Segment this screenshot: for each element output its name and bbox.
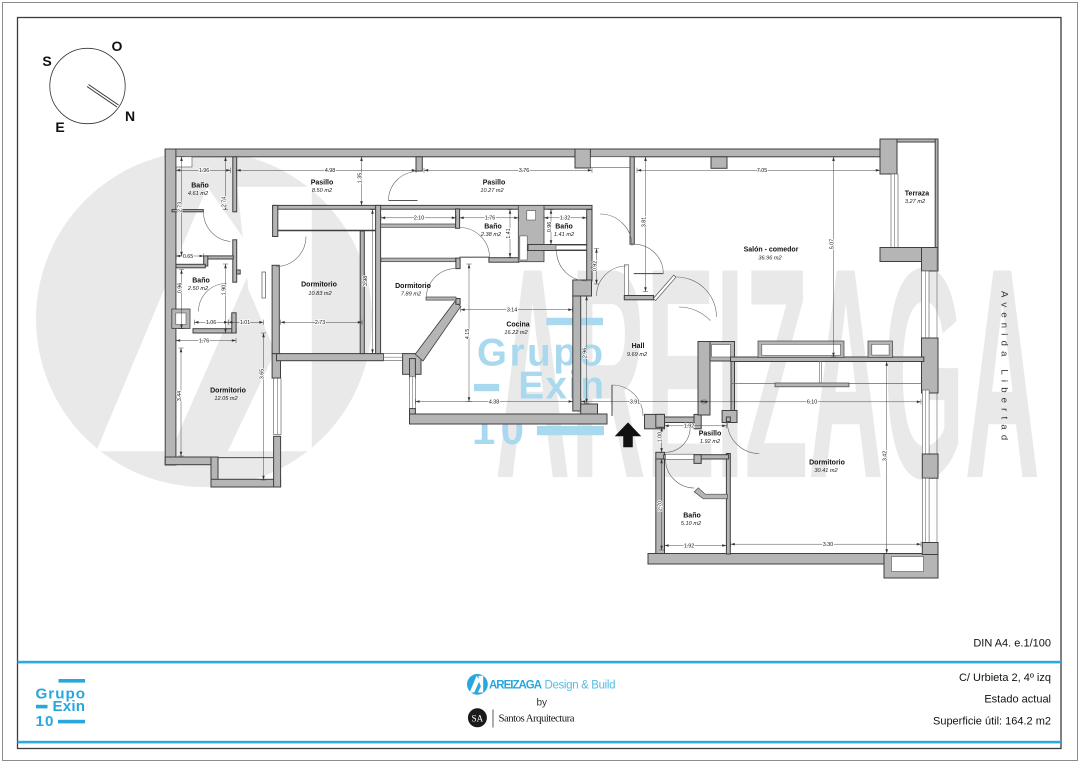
svg-text:Baño: Baño xyxy=(484,224,502,231)
svg-text:8.50 m2: 8.50 m2 xyxy=(312,188,333,194)
svg-text:3.42: 3.42 xyxy=(883,451,889,461)
svg-text:3.30: 3.30 xyxy=(823,542,833,548)
svg-text:3.65: 3.65 xyxy=(260,369,266,379)
svg-text:DIN A4. e.1/100: DIN A4. e.1/100 xyxy=(973,638,1051,650)
svg-text:2.50 m2: 2.50 m2 xyxy=(187,286,209,292)
svg-text:1.92 m2: 1.92 m2 xyxy=(700,439,721,445)
svg-text:C/ Urbieta 2, 4º izq: C/ Urbieta 2, 4º izq xyxy=(959,672,1051,684)
svg-text:36.96 m2: 36.96 m2 xyxy=(758,256,782,262)
svg-text:Baño: Baño xyxy=(683,513,701,520)
svg-text:Design & Build: Design & Build xyxy=(545,680,616,692)
svg-text:by: by xyxy=(537,698,548,709)
svg-text:2.96: 2.96 xyxy=(583,348,589,358)
svg-text:S: S xyxy=(42,53,51,69)
svg-text:Pasillo: Pasillo xyxy=(699,431,722,438)
svg-text:7.05: 7.05 xyxy=(757,168,767,174)
svg-text:N: N xyxy=(125,108,135,124)
svg-text:O: O xyxy=(112,38,123,54)
svg-text:Dormitorio: Dormitorio xyxy=(301,282,337,289)
svg-text:Dormitorio: Dormitorio xyxy=(395,283,431,290)
svg-text:Hall: Hall xyxy=(632,343,645,350)
svg-text:2.73: 2.73 xyxy=(178,202,184,212)
svg-text:4.15: 4.15 xyxy=(465,329,471,339)
svg-text:Avenida Libertad: Avenida Libertad xyxy=(999,291,1010,445)
svg-text:3.14: 3.14 xyxy=(507,308,517,314)
svg-text:E: E xyxy=(55,119,64,135)
svg-text:1.76: 1.76 xyxy=(199,338,209,344)
svg-text:Dormitorio: Dormitorio xyxy=(210,388,246,395)
svg-text:5.10 m2: 5.10 m2 xyxy=(681,521,702,527)
svg-text:2.38 m2: 2.38 m2 xyxy=(480,232,502,238)
svg-text:Baño: Baño xyxy=(191,183,209,190)
svg-text:2.70: 2.70 xyxy=(658,501,664,511)
svg-text:1.32: 1.32 xyxy=(560,216,570,222)
svg-text:Pasillo: Pasillo xyxy=(311,180,334,187)
svg-text:Exin: Exin xyxy=(518,365,604,408)
svg-text:3.27 m2: 3.27 m2 xyxy=(905,199,926,205)
svg-text:Cocina: Cocina xyxy=(506,322,529,329)
svg-text:2.73: 2.73 xyxy=(315,320,325,326)
svg-text:0.92: 0.92 xyxy=(593,261,599,271)
svg-text:Pasillo: Pasillo xyxy=(483,180,506,187)
svg-text:0.96: 0.96 xyxy=(547,222,553,232)
svg-text:Salón - comedor: Salón - comedor xyxy=(744,247,799,254)
svg-text:2.10: 2.10 xyxy=(414,216,424,222)
svg-text:SA: SA xyxy=(472,714,484,724)
svg-text:3.91: 3.91 xyxy=(630,399,640,405)
svg-text:10.83 m2: 10.83 m2 xyxy=(308,291,332,297)
svg-text:Dormitorio: Dormitorio xyxy=(809,460,845,467)
svg-text:1.76: 1.76 xyxy=(485,216,495,222)
svg-text:Baño: Baño xyxy=(555,224,573,231)
svg-text:1.92: 1.92 xyxy=(684,543,694,549)
svg-text:6.10: 6.10 xyxy=(807,400,817,406)
svg-text:0.65: 0.65 xyxy=(183,254,193,260)
svg-text:7.89 m2: 7.89 m2 xyxy=(401,292,422,298)
svg-text:1.35: 1.35 xyxy=(358,173,364,183)
svg-text:1.06: 1.06 xyxy=(206,320,216,326)
svg-text:AREIZAGA: AREIZAGA xyxy=(489,680,542,692)
svg-text:1.90: 1.90 xyxy=(222,285,228,295)
svg-text:0.96: 0.96 xyxy=(178,283,184,293)
svg-text:3.81: 3.81 xyxy=(642,217,648,227)
svg-text:12.05 m2: 12.05 m2 xyxy=(214,396,238,402)
svg-text:Superficie útil: 164.2 m2: Superficie útil: 164.2 m2 xyxy=(933,716,1051,728)
svg-text:9.69 m2: 9.69 m2 xyxy=(627,352,648,358)
svg-text:1.96: 1.96 xyxy=(199,168,209,174)
svg-text:16.22 m2: 16.22 m2 xyxy=(504,330,528,336)
svg-text:3.44: 3.44 xyxy=(177,391,183,401)
svg-text:1.41: 1.41 xyxy=(506,228,512,238)
svg-text:5.07: 5.07 xyxy=(830,239,836,249)
svg-text:Santos Arquitectura: Santos Arquitectura xyxy=(499,713,575,725)
svg-text:10.27 m2: 10.27 m2 xyxy=(480,188,504,194)
svg-text:4.38: 4.38 xyxy=(489,399,499,405)
svg-text:30.41 m2: 30.41 m2 xyxy=(814,468,838,474)
svg-text:1.41 m2: 1.41 m2 xyxy=(554,232,575,238)
svg-text:1.00: 1.00 xyxy=(658,432,664,442)
svg-text:3.76: 3.76 xyxy=(519,168,529,174)
svg-text:Estado actual: Estado actual xyxy=(984,694,1051,706)
svg-text:3.98: 3.98 xyxy=(363,276,369,286)
svg-text:Baño: Baño xyxy=(192,278,210,285)
svg-text:Terraza: Terraza xyxy=(905,191,929,198)
svg-text:1.01: 1.01 xyxy=(240,320,250,326)
svg-text:4.98: 4.98 xyxy=(325,168,335,174)
svg-text:2.74: 2.74 xyxy=(222,197,228,207)
svg-text:1.92: 1.92 xyxy=(684,424,694,430)
svg-text:4.61 m2: 4.61 m2 xyxy=(188,191,209,197)
